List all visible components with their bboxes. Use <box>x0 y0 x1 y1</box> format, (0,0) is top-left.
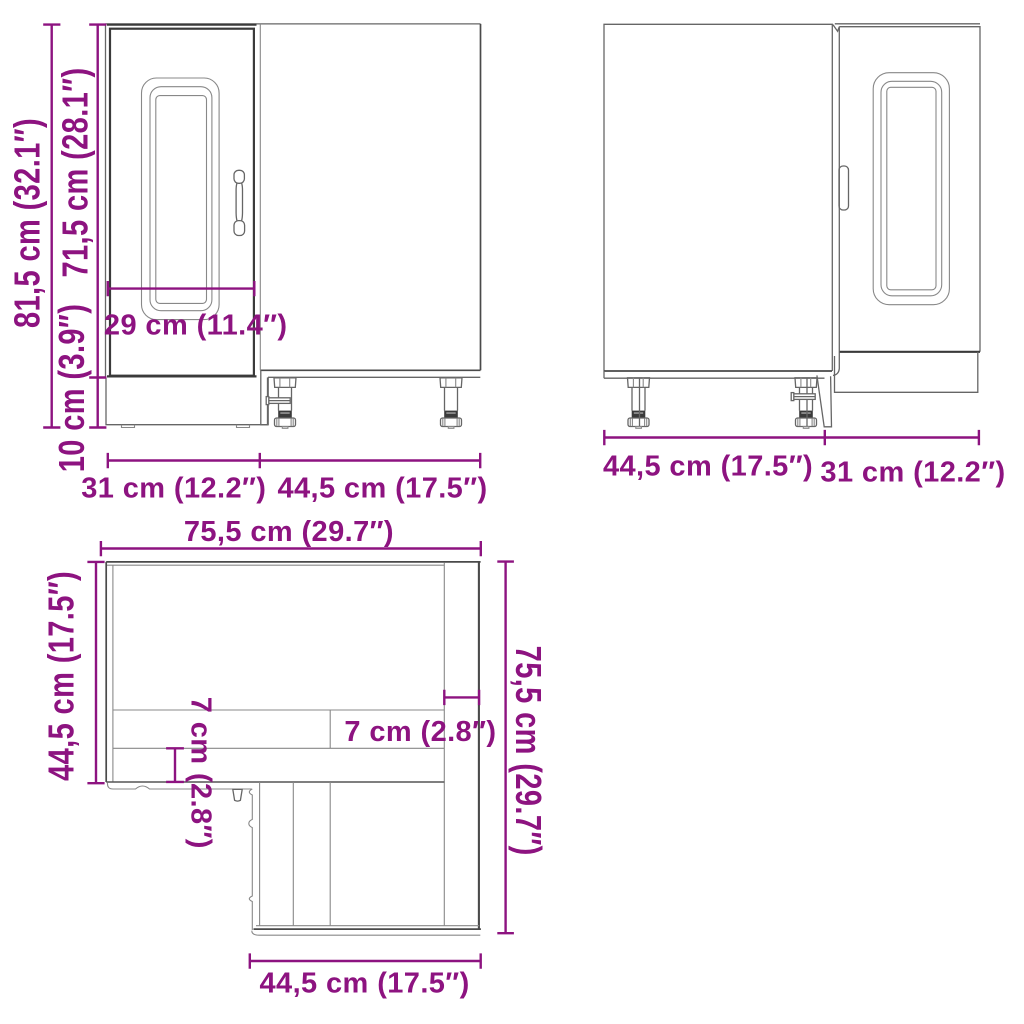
svg-text:31 cm (12.2″): 31 cm (12.2″) <box>81 473 266 505</box>
svg-text:81,5 cm (32.1″): 81,5 cm (32.1″) <box>6 118 47 328</box>
svg-text:7 cm (2.8″): 7 cm (2.8″) <box>344 716 496 748</box>
svg-text:31 cm (12.2″): 31 cm (12.2″) <box>820 457 1005 489</box>
svg-text:7 cm (2.8″): 7 cm (2.8″) <box>185 697 217 849</box>
svg-text:75,5 cm (29.7″): 75,5 cm (29.7″) <box>508 646 549 856</box>
svg-text:10 cm (3.9″): 10 cm (3.9″) <box>51 304 92 473</box>
svg-text:29 cm (11.4″): 29 cm (11.4″) <box>104 310 288 342</box>
svg-text:75,5 cm (29.7″): 75,5 cm (29.7″) <box>184 516 394 548</box>
svg-text:44,5 cm (17.5″): 44,5 cm (17.5″) <box>277 473 487 505</box>
svg-text:71,5 cm (28.1″): 71,5 cm (28.1″) <box>54 67 95 277</box>
svg-text:44,5 cm (17.5″): 44,5 cm (17.5″) <box>260 968 470 1000</box>
svg-text:44,5 cm (17.5″): 44,5 cm (17.5″) <box>40 571 81 781</box>
svg-text:44,5 cm (17.5″): 44,5 cm (17.5″) <box>603 450 813 482</box>
